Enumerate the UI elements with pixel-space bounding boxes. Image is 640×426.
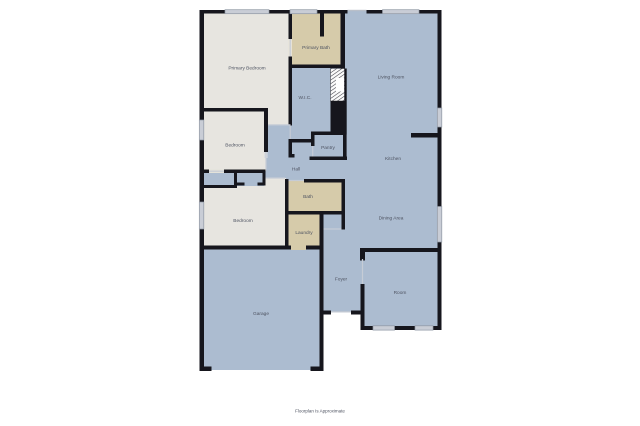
svg-text:Foyer: Foyer xyxy=(335,277,348,283)
svg-text:Hall: Hall xyxy=(292,167,300,173)
svg-text:Dining Area: Dining Area xyxy=(379,216,404,222)
svg-text:Primary Bath: Primary Bath xyxy=(302,45,330,51)
svg-text:Pantry: Pantry xyxy=(321,145,335,151)
svg-text:Primary Bedroom: Primary Bedroom xyxy=(228,65,265,71)
svg-text:Bedroom: Bedroom xyxy=(225,143,244,149)
svg-text:Garage: Garage xyxy=(253,311,269,317)
svg-text:W.I.C.: W.I.C. xyxy=(298,95,311,101)
svg-text:Kitchen: Kitchen xyxy=(385,156,401,162)
svg-text:Bath: Bath xyxy=(303,194,313,200)
svg-text:Living Room: Living Room xyxy=(378,75,405,81)
svg-text:Laundry: Laundry xyxy=(295,230,313,236)
svg-text:Room: Room xyxy=(394,290,407,296)
svg-text:Bedroom: Bedroom xyxy=(233,218,252,224)
svg-text:Floorplan Is Approximate: Floorplan Is Approximate xyxy=(295,409,345,414)
